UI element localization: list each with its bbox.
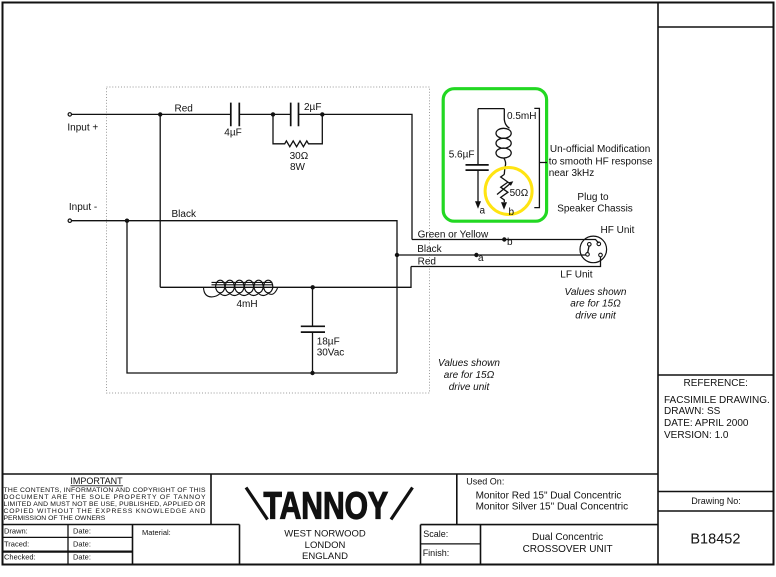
svg-text:are for 15Ω: are for 15Ω xyxy=(570,299,621,310)
svg-text:HF Unit: HF Unit xyxy=(601,225,635,236)
svg-text:Checked:: Checked: xyxy=(4,553,36,562)
svg-text:2µF: 2µF xyxy=(304,102,321,113)
svg-text:Date:: Date: xyxy=(73,527,91,536)
svg-text:30Ω: 30Ω xyxy=(290,151,309,162)
svg-text:Drawn:: Drawn: xyxy=(4,527,28,536)
svg-text:to smooth HF response: to smooth HF response xyxy=(549,156,653,167)
svg-text:FACSIMILE DRAWING.: FACSIMILE DRAWING. xyxy=(664,395,770,406)
svg-text:Green or Yellow: Green or Yellow xyxy=(418,230,489,241)
svg-text:5.6µF: 5.6µF xyxy=(449,150,475,161)
svg-text:Drawing No:: Drawing No: xyxy=(691,496,741,506)
svg-text:Red: Red xyxy=(175,103,193,114)
svg-text:Finish:: Finish: xyxy=(423,548,450,558)
svg-text:B18452: B18452 xyxy=(690,532,740,548)
svg-text:WEST NORWOOD: WEST NORWOOD xyxy=(284,528,366,539)
svg-text:REFERENCE:: REFERENCE: xyxy=(683,378,747,389)
svg-text:PERMISSION OF THE OWNERS: PERMISSION OF THE OWNERS xyxy=(4,515,106,522)
svg-text:4µF: 4µF xyxy=(224,127,241,138)
svg-text:Speaker Chassis: Speaker Chassis xyxy=(557,204,633,215)
svg-text:Traced:: Traced: xyxy=(4,540,29,549)
svg-text:50Ω: 50Ω xyxy=(510,188,529,199)
svg-text:Date:: Date: xyxy=(73,553,91,562)
svg-text:IMPORTANT: IMPORTANT xyxy=(70,476,123,486)
svg-text:18µF: 18µF xyxy=(317,336,340,347)
svg-text:Monitor Silver 15" Dual Concen: Monitor Silver 15" Dual Concentric xyxy=(476,502,628,513)
svg-text:Monitor Red 15" Dual Concentri: Monitor Red 15" Dual Concentric xyxy=(476,490,622,501)
svg-text:0.5mH: 0.5mH xyxy=(507,111,536,122)
svg-text:Values shown: Values shown xyxy=(438,358,500,369)
svg-text:LONDON: LONDON xyxy=(305,540,346,551)
svg-text:Un-official Modification: Un-official Modification xyxy=(550,144,650,155)
svg-text:ENGLAND: ENGLAND xyxy=(302,551,348,562)
svg-text:Dual Concentric: Dual Concentric xyxy=(532,532,603,543)
svg-text:Black: Black xyxy=(172,209,197,220)
svg-text:b: b xyxy=(507,237,513,248)
svg-text:DRAWN: SS: DRAWN: SS xyxy=(664,406,721,417)
svg-text:THE CONTENTS, INFORMATION AND: THE CONTENTS, INFORMATION AND COPYRIGHT … xyxy=(4,487,206,494)
svg-text:Date:: Date: xyxy=(73,540,91,549)
svg-text:DOCUMENT ARE THE SOLE PROPERTY: DOCUMENT ARE THE SOLE PROPERTY OF TANNOY xyxy=(4,494,206,501)
svg-text:Scale:: Scale: xyxy=(423,529,448,539)
svg-text:drive unit: drive unit xyxy=(575,310,617,321)
svg-text:Used On:: Used On: xyxy=(466,477,504,487)
svg-text:Input +: Input + xyxy=(67,123,98,134)
svg-text:drive unit: drive unit xyxy=(449,382,491,393)
svg-text:VERSION: 1.0: VERSION: 1.0 xyxy=(664,430,729,441)
svg-text:Material:: Material: xyxy=(142,528,171,537)
svg-text:are for 15Ω: are for 15Ω xyxy=(444,370,495,381)
svg-text:a: a xyxy=(480,206,486,217)
svg-text:LF Unit: LF Unit xyxy=(560,270,592,281)
svg-text:TANNOY: TANNOY xyxy=(264,486,389,528)
svg-text:8W: 8W xyxy=(290,162,306,173)
svg-text:Values shown: Values shown xyxy=(565,287,627,298)
svg-text:Red: Red xyxy=(418,257,436,268)
svg-text:30Vac: 30Vac xyxy=(317,347,345,358)
svg-text:b: b xyxy=(509,207,515,218)
svg-text:DATE: APRIL 2000: DATE: APRIL 2000 xyxy=(664,418,749,429)
svg-text:near 3kHz: near 3kHz xyxy=(549,168,595,179)
svg-text:LIMITED AND MUST NOT BE USE, P: LIMITED AND MUST NOT BE USE, PUBLISHED, … xyxy=(4,501,206,508)
svg-text:a: a xyxy=(478,253,484,264)
svg-text:4mH: 4mH xyxy=(236,299,257,310)
svg-text:Black: Black xyxy=(417,244,442,255)
svg-text:CROSSOVER UNIT: CROSSOVER UNIT xyxy=(523,544,613,555)
svg-text:Input -: Input - xyxy=(69,202,97,213)
svg-text:Plug to: Plug to xyxy=(577,192,609,203)
